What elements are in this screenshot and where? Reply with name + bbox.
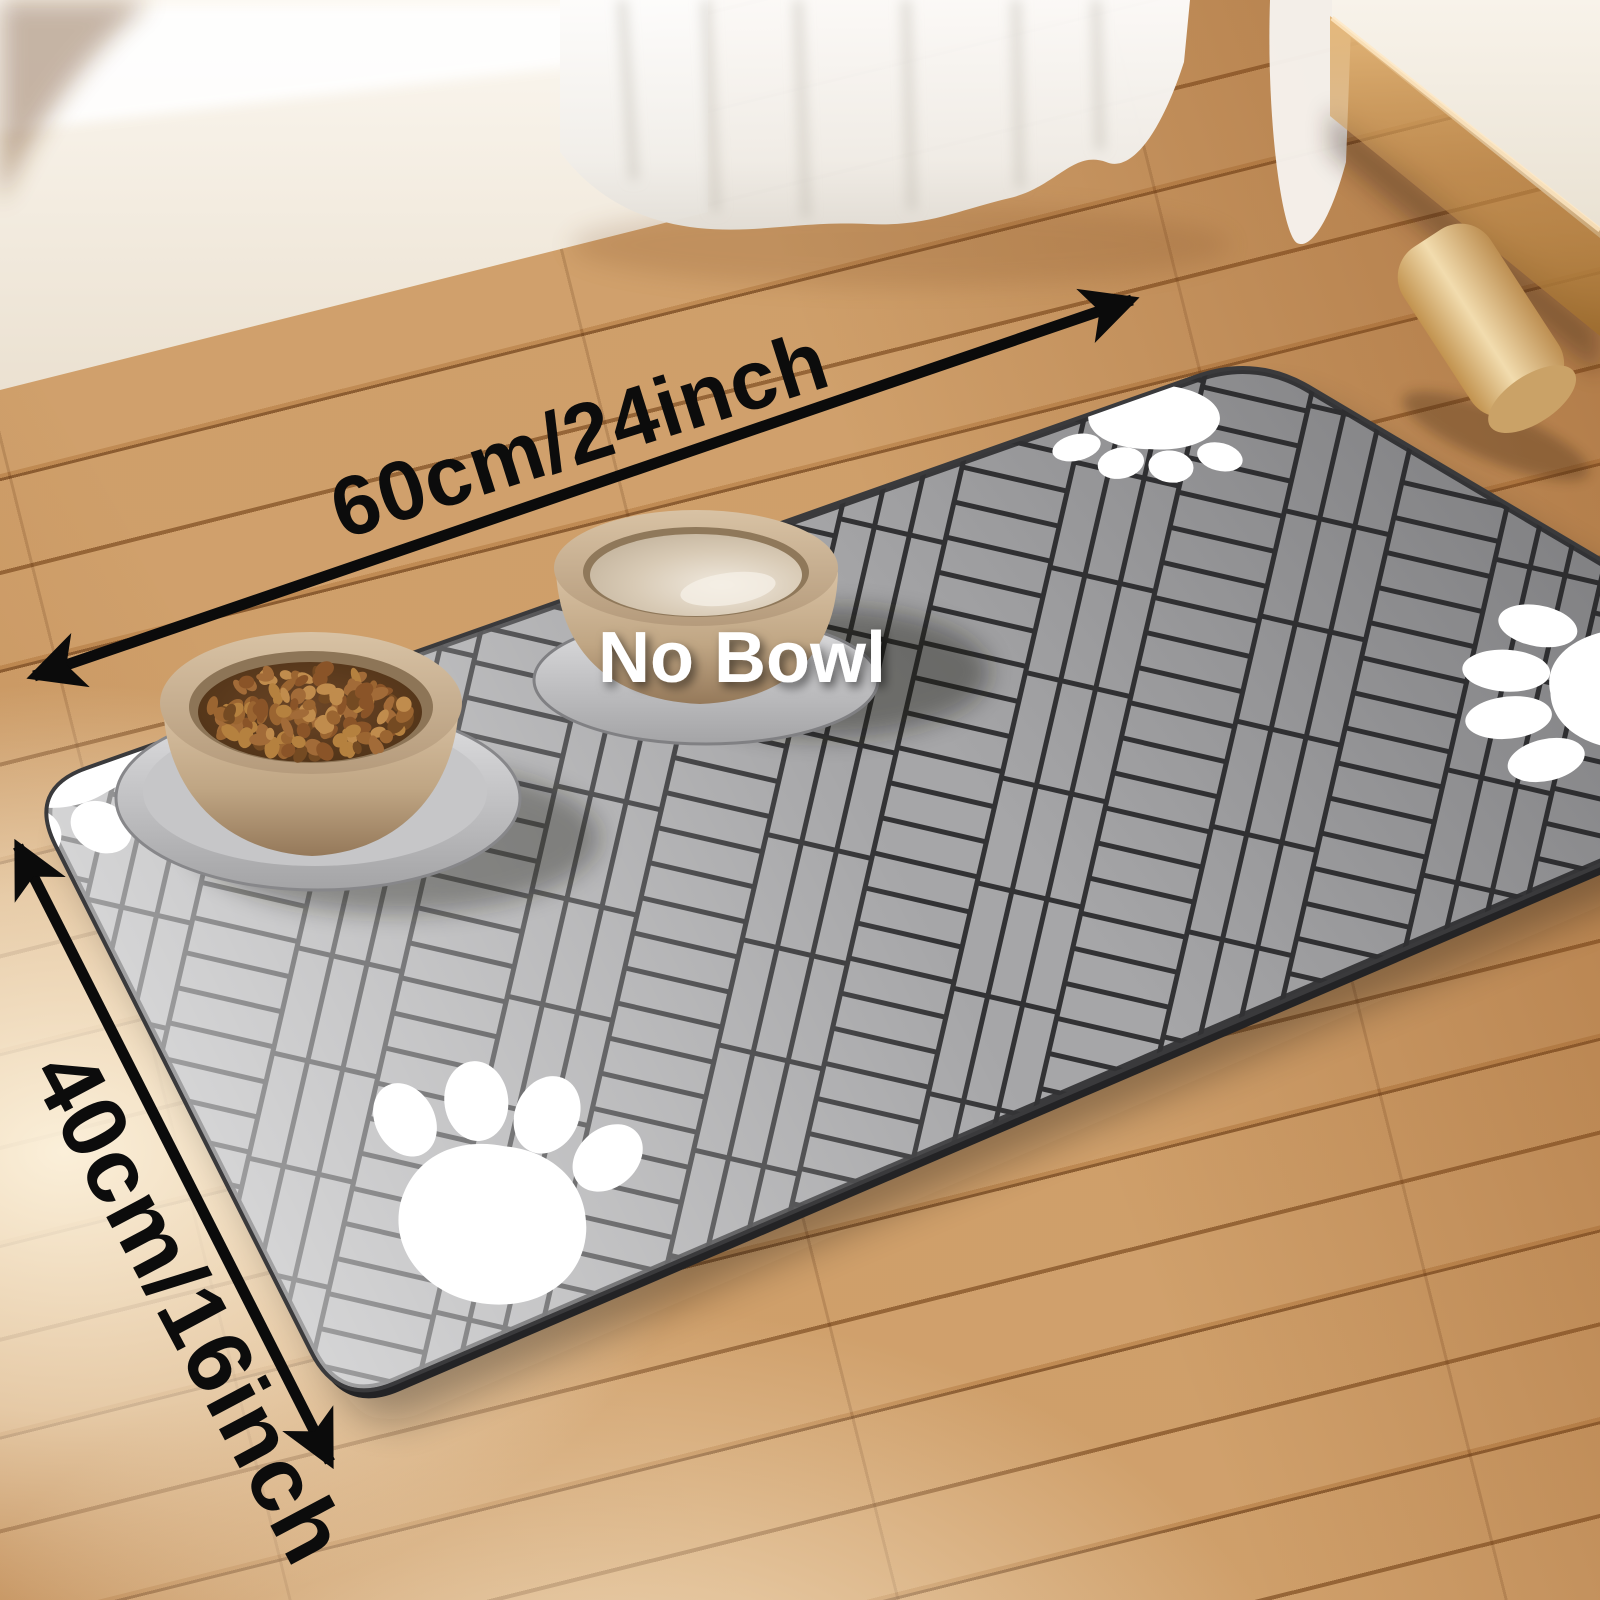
mat-seam (1374, 1085, 1479, 1109)
mat-seam (1027, 186, 1132, 210)
mat-seam (880, 1304, 985, 1328)
mat-seam (1399, 1455, 1504, 1479)
mat-seam (1171, 41, 1276, 65)
mat-seam (1167, 1499, 1272, 1523)
mat-seam (50, 577, 155, 601)
mat-seam (1235, 247, 1340, 271)
mat-seam (904, 1199, 1009, 1223)
mat-seam (0, 1243, 1, 1267)
mat-seam (495, 1529, 600, 1553)
mat-seam (63, 1479, 168, 1503)
mat-seam (727, 1484, 832, 1508)
mat-seam (978, 397, 1083, 421)
mat-seam (645, 1360, 750, 1384)
mat-seam (0, 1173, 18, 1197)
mat-seam (1375, 1560, 1480, 1584)
mat-seam (746, 442, 851, 466)
mat-seam (1415, 1384, 1520, 1408)
mat-seam (0, 429, 78, 453)
mat-seam (82, 436, 187, 460)
mat-seam (1456, 1209, 1561, 1233)
mat-seam (66, 506, 171, 530)
mat-seam (1591, 1585, 1600, 1600)
mat-seam (410, 1417, 515, 1441)
mat-seam (776, 1274, 881, 1298)
curtain (560, 0, 1352, 287)
mat-seam (0, 1033, 50, 1057)
mat-seam (1114, 1247, 1219, 1271)
mat-seam (39, 1584, 144, 1600)
mat-seam (0, 1530, 46, 1554)
mat-seam (266, 602, 371, 626)
mat-seam (0, 962, 66, 986)
mat-seam (1440, 1279, 1545, 1303)
mat-seam (735, 1449, 840, 1473)
mat-seam (1016, 1194, 1121, 1218)
mat-seam (386, 1522, 491, 1546)
mat-seam (1535, 1344, 1600, 1368)
mat-seam (1175, 1464, 1280, 1488)
mat-seam (629, 470, 734, 494)
mat-seam (1488, 1069, 1593, 1093)
mat-seam (621, 1466, 726, 1490)
mat-seam (0, 640, 30, 664)
mat-seam (0, 1320, 95, 1344)
mat-seam (752, 1379, 857, 1403)
mat-seam (18, 717, 123, 741)
mat-seam (1208, 1324, 1313, 1348)
mat-seam (738, 477, 843, 501)
mat-seam (976, 1369, 1081, 1393)
mat-seam (563, 276, 668, 300)
mat-seam (1240, 1184, 1345, 1208)
mat-seam (528, 1389, 633, 1413)
mat-seam (984, 1334, 1089, 1358)
mat-seam (831, 1514, 936, 1538)
mat-seam (0, 745, 6, 769)
mat-seam (1472, 1139, 1577, 1163)
mat-seam (967, 1404, 1072, 1428)
mat-seam (184, 478, 289, 502)
mat-seam (1224, 1254, 1329, 1278)
mat-seam (959, 1439, 1064, 1463)
mat-seam (1423, 1349, 1528, 1373)
mat-seam (80, 1409, 185, 1433)
mat-seam (760, 1344, 865, 1368)
mat-seam (1008, 1229, 1113, 1253)
mat-seam (555, 311, 660, 335)
mat-seam (1513, 963, 1600, 987)
mat-seam (1504, 998, 1600, 1022)
mat-seam (711, 1554, 816, 1578)
mat-seam (1090, 1352, 1195, 1376)
mat-seam (719, 1519, 824, 1543)
mat-seam (1391, 1490, 1496, 1514)
mat-seam (1487, 1555, 1592, 1579)
mat-seam (0, 1208, 10, 1232)
mat-seam (1227, 282, 1332, 306)
mat-seam (487, 1564, 592, 1588)
mat-seam (1066, 1458, 1171, 1482)
mat-seam (951, 1474, 1056, 1498)
mat-seam (1448, 1244, 1553, 1268)
mat-seam (331, 321, 436, 345)
mat-seam (1276, 1506, 1381, 1530)
no-bowl-label: No Bowl (598, 618, 886, 698)
mat-seam (1139, 1142, 1244, 1166)
mat-seam (99, 366, 204, 390)
mat-seam (888, 308, 993, 332)
mat-seam (1042, 1563, 1147, 1587)
mat-seam (1383, 1525, 1488, 1549)
mat-seam (0, 535, 54, 559)
mat-seam (0, 1138, 26, 1162)
mat-seam (511, 1459, 616, 1483)
mat-seam (743, 1414, 848, 1438)
mat-seam (72, 1444, 177, 1468)
mat-seam (992, 1299, 1097, 1323)
mat-seam (1496, 1034, 1600, 1058)
mat-seam (1256, 1114, 1361, 1138)
mat-seam (1349, 1191, 1454, 1215)
mat-seam (47, 1549, 152, 1573)
mat-seam (1216, 1289, 1321, 1313)
mat-seam (986, 362, 1091, 386)
mat-seam (1000, 1264, 1105, 1288)
mat-seam (1367, 1595, 1472, 1600)
mat-seam (855, 1409, 960, 1433)
mat-seam (42, 612, 147, 636)
mat-seam (1199, 1359, 1304, 1383)
mat-seam (1183, 1429, 1288, 1453)
mat-seam (1248, 1149, 1353, 1173)
mat-seam (536, 1354, 641, 1378)
mat-seam (1147, 146, 1252, 170)
mat-seam (0, 1425, 70, 1449)
mat-seam (74, 471, 179, 495)
mat-seam (1584, 1134, 1600, 1158)
mat-seam (208, 373, 313, 397)
mat-seam (503, 1494, 608, 1518)
mat-seam (768, 1309, 873, 1333)
mat-seam (443, 316, 548, 340)
mat-seam (91, 401, 196, 425)
mat-seam (0, 997, 58, 1021)
mat-seam (151, 1579, 256, 1600)
mat-seam (1407, 1419, 1512, 1443)
mat-seam (26, 682, 131, 706)
mat-seam (58, 541, 163, 565)
mat-seam (55, 1514, 160, 1538)
mat-seam (323, 356, 428, 380)
mat-seam (1151, 1570, 1256, 1594)
mat-seam (1480, 1104, 1585, 1128)
mat-seam (943, 1509, 1048, 1533)
product-scene: 60cm/24inch 40cm/16inch No Bowl (0, 0, 1600, 1600)
mat-seam (1272, 1043, 1377, 1067)
mat-seam (1232, 1219, 1337, 1243)
mat-seam (1159, 1535, 1264, 1559)
mat-seam (519, 1424, 624, 1448)
mat-seam (1301, 1401, 1406, 1425)
mat-seam (1325, 1296, 1430, 1320)
mat-seam (596, 1571, 701, 1595)
mat-seam (935, 1544, 1040, 1568)
mat-seam (1464, 1174, 1569, 1198)
mat-seam (1432, 1314, 1537, 1338)
mat-seam (1024, 1159, 1129, 1183)
mat-seam (315, 391, 420, 415)
mat-seam (1264, 1079, 1369, 1103)
mat-seam (1511, 1450, 1600, 1474)
mat-seam (1191, 1394, 1296, 1418)
mat-seam (927, 1579, 1032, 1600)
mat-seam (703, 1589, 808, 1600)
mat-seam (1218, 317, 1323, 341)
mat-seam (864, 413, 969, 437)
mat-seam (1560, 1239, 1600, 1263)
